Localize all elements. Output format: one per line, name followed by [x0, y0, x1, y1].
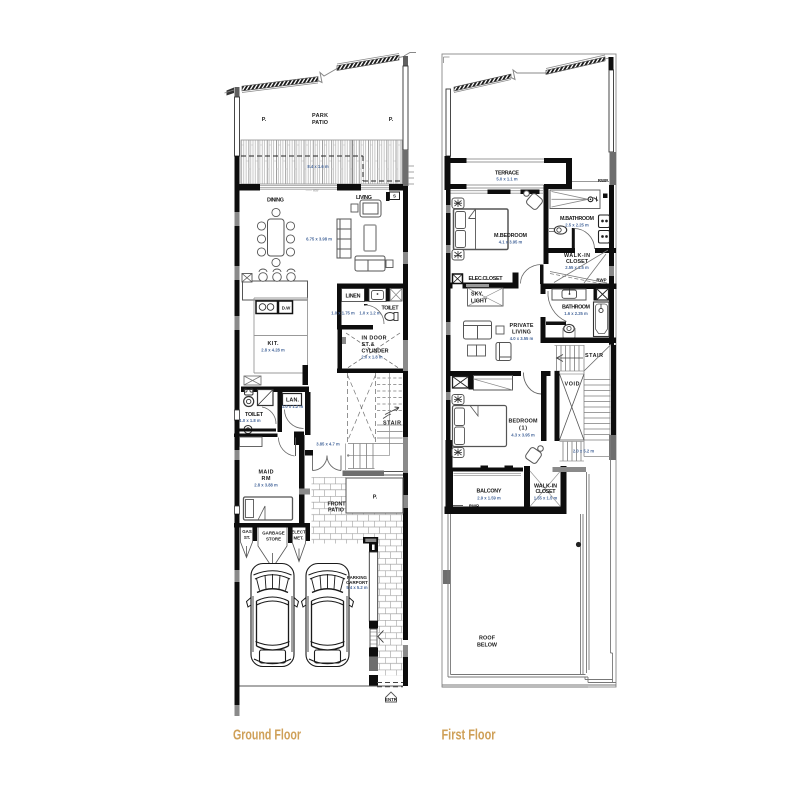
svg-text:ROOF: ROOF: [479, 636, 496, 642]
svg-text:PARK: PARK: [312, 113, 328, 119]
svg-text:4.3 x 3.95 m: 4.3 x 3.95 m: [511, 433, 535, 438]
svg-text:STAIR: STAIR: [383, 421, 401, 427]
svg-text:LAN.: LAN.: [286, 398, 300, 404]
svg-text:P.: P.: [373, 495, 378, 501]
svg-text:BALCONY: BALCONY: [477, 489, 502, 495]
svg-text:P.: P.: [389, 117, 394, 123]
svg-text:CLOSET: CLOSET: [536, 489, 557, 495]
svg-text:STAIR: STAIR: [585, 353, 603, 359]
svg-text:LIGHT: LIGHT: [471, 299, 488, 305]
svg-text:STORE: STORE: [266, 537, 281, 542]
svg-text:BELOW: BELOW: [477, 643, 498, 649]
svg-text:8.4 x 1.6 m: 8.4 x 1.6 m: [307, 164, 328, 169]
svg-text:D.W: D.W: [282, 306, 291, 311]
svg-text:ELECT: ELECT: [291, 530, 306, 535]
svg-text:KIT.: KIT.: [268, 341, 280, 347]
svg-text:2.0 x 5.2 m: 2.0 x 5.2 m: [573, 449, 594, 454]
svg-text:MET.: MET.: [293, 536, 303, 541]
svg-text:2.55 x 1.5 m: 2.55 x 1.5 m: [565, 265, 589, 270]
svg-text:PRIVATE: PRIVATE: [510, 323, 534, 329]
svg-text:PATIO: PATIO: [312, 120, 328, 126]
svg-text:1.0 x 1.2 m: 1.0 x 1.2 m: [282, 404, 303, 409]
svg-text:2.8 x 3.88 m: 2.8 x 3.88 m: [254, 483, 278, 488]
svg-text:1.0 x 1.2 m: 1.0 x 1.2 m: [359, 311, 380, 316]
svg-text:ST.&: ST.&: [362, 342, 375, 348]
svg-text:2.8 x 4.28 m: 2.8 x 4.28 m: [261, 348, 285, 353]
svg-text:RWP: RWP: [596, 278, 606, 283]
svg-text:—— wall: —— wall: [305, 189, 319, 193]
svg-text:PATIO: PATIO: [328, 508, 344, 514]
svg-text:6.75 x 3.98 m: 6.75 x 3.98 m: [306, 237, 332, 242]
svg-text:1.0 x 1.8 m: 1.0 x 1.8 m: [239, 418, 260, 423]
svg-text:M.BEDROOM: M.BEDROOM: [494, 233, 528, 239]
svg-text:2.0 x 1.8 m: 2.0 x 1.8 m: [361, 355, 382, 360]
svg-text:2.9 x 1.59 m: 2.9 x 1.59 m: [477, 496, 501, 501]
svg-text:4.1 x 3.95 m: 4.1 x 3.95 m: [499, 240, 523, 245]
svg-text:1.6 x 2.25 m: 1.6 x 2.25 m: [564, 311, 588, 316]
svg-text:GARBAGE: GARBAGE: [262, 531, 285, 536]
svg-text:S: S: [393, 194, 396, 199]
svg-text:1.55 x 1.5 m: 1.55 x 1.5 m: [534, 496, 558, 501]
svg-text:SKY.: SKY.: [471, 292, 483, 298]
svg-text:LIVING: LIVING: [512, 330, 531, 336]
svg-text:GAS: GAS: [242, 529, 252, 534]
svg-text:1.0 x 1.75 m: 1.0 x 1.75 m: [331, 311, 355, 316]
svg-text:5.4 x 5.2 m: 5.4 x 5.2 m: [346, 585, 367, 590]
svg-text:LINEN: LINEN: [346, 294, 361, 300]
svg-text:4.0 x 3.55 m: 4.0 x 3.55 m: [510, 336, 534, 341]
svg-text:RWP: RWP: [598, 178, 608, 183]
svg-text:P.: P.: [262, 117, 267, 123]
svg-text:5.0 x 1.1 m: 5.0 x 1.1 m: [496, 177, 517, 182]
svg-text:ENTR: ENTR: [385, 697, 398, 702]
svg-text:DINING: DINING: [267, 198, 284, 204]
svg-text:BATHROOM: BATHROOM: [562, 305, 591, 311]
svg-text:Ground Floor: Ground Floor: [233, 728, 301, 744]
svg-text:2.5 x 2.25 m: 2.5 x 2.25 m: [565, 223, 589, 228]
svg-text:ELEC.CLOSET: ELEC.CLOSET: [469, 276, 504, 282]
svg-text:(1): (1): [519, 426, 527, 432]
svg-text:BEDROOM: BEDROOM: [509, 419, 539, 425]
svg-text:M.BATHROOM: M.BATHROOM: [560, 216, 595, 222]
svg-text:ST.: ST.: [244, 535, 250, 540]
svg-text:VOID: VOID: [565, 382, 580, 388]
svg-text:TOILET: TOILET: [382, 306, 400, 312]
svg-text:3.85 x 4.7 m: 3.85 x 4.7 m: [316, 442, 340, 447]
svg-text:MAID: MAID: [259, 470, 274, 476]
svg-text:First Floor: First Floor: [442, 728, 496, 744]
svg-text:RM: RM: [262, 476, 272, 482]
svg-text:IN DOOR: IN DOOR: [362, 336, 387, 342]
